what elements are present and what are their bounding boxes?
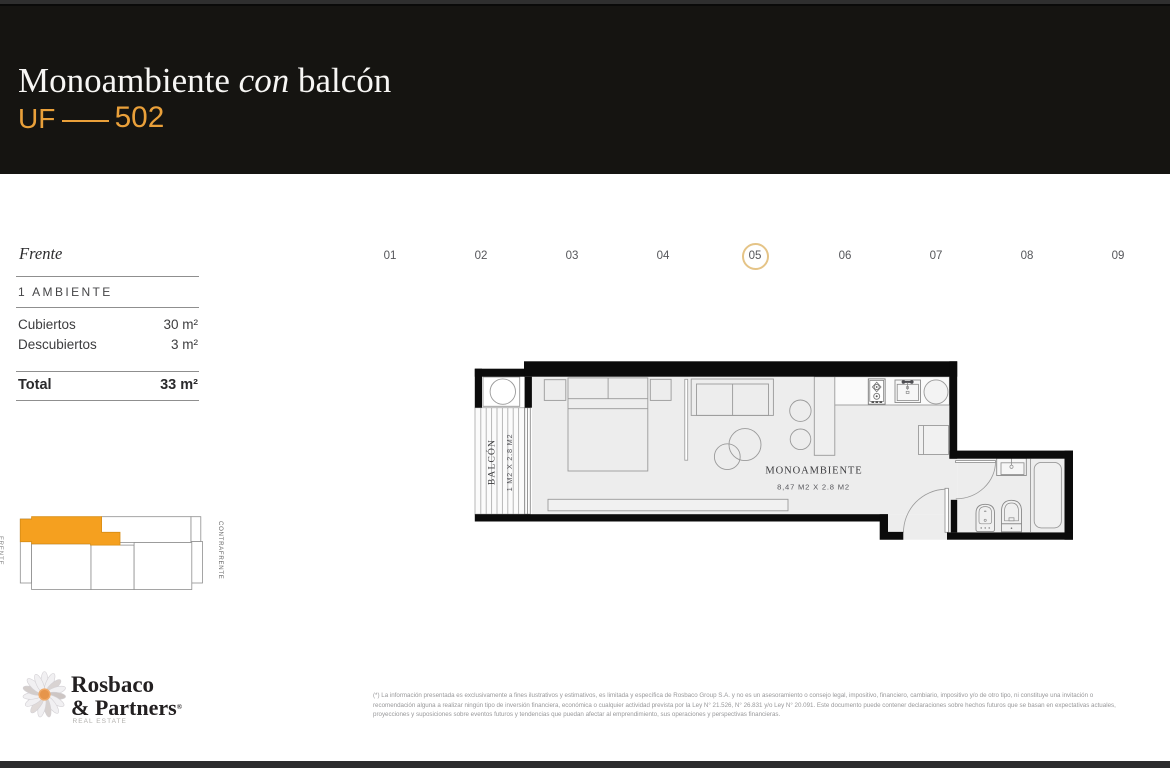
svg-text:8,47 M2 X 2.8 M2: 8,47 M2 X 2.8 M2: [777, 483, 850, 492]
svg-text:1 M2 X 2.8 M2: 1 M2 X 2.8 M2: [505, 434, 514, 492]
svg-text:MONOAMBIENTE: MONOAMBIENTE: [765, 466, 862, 477]
svg-text:BALCÓN: BALCÓN: [486, 439, 498, 485]
